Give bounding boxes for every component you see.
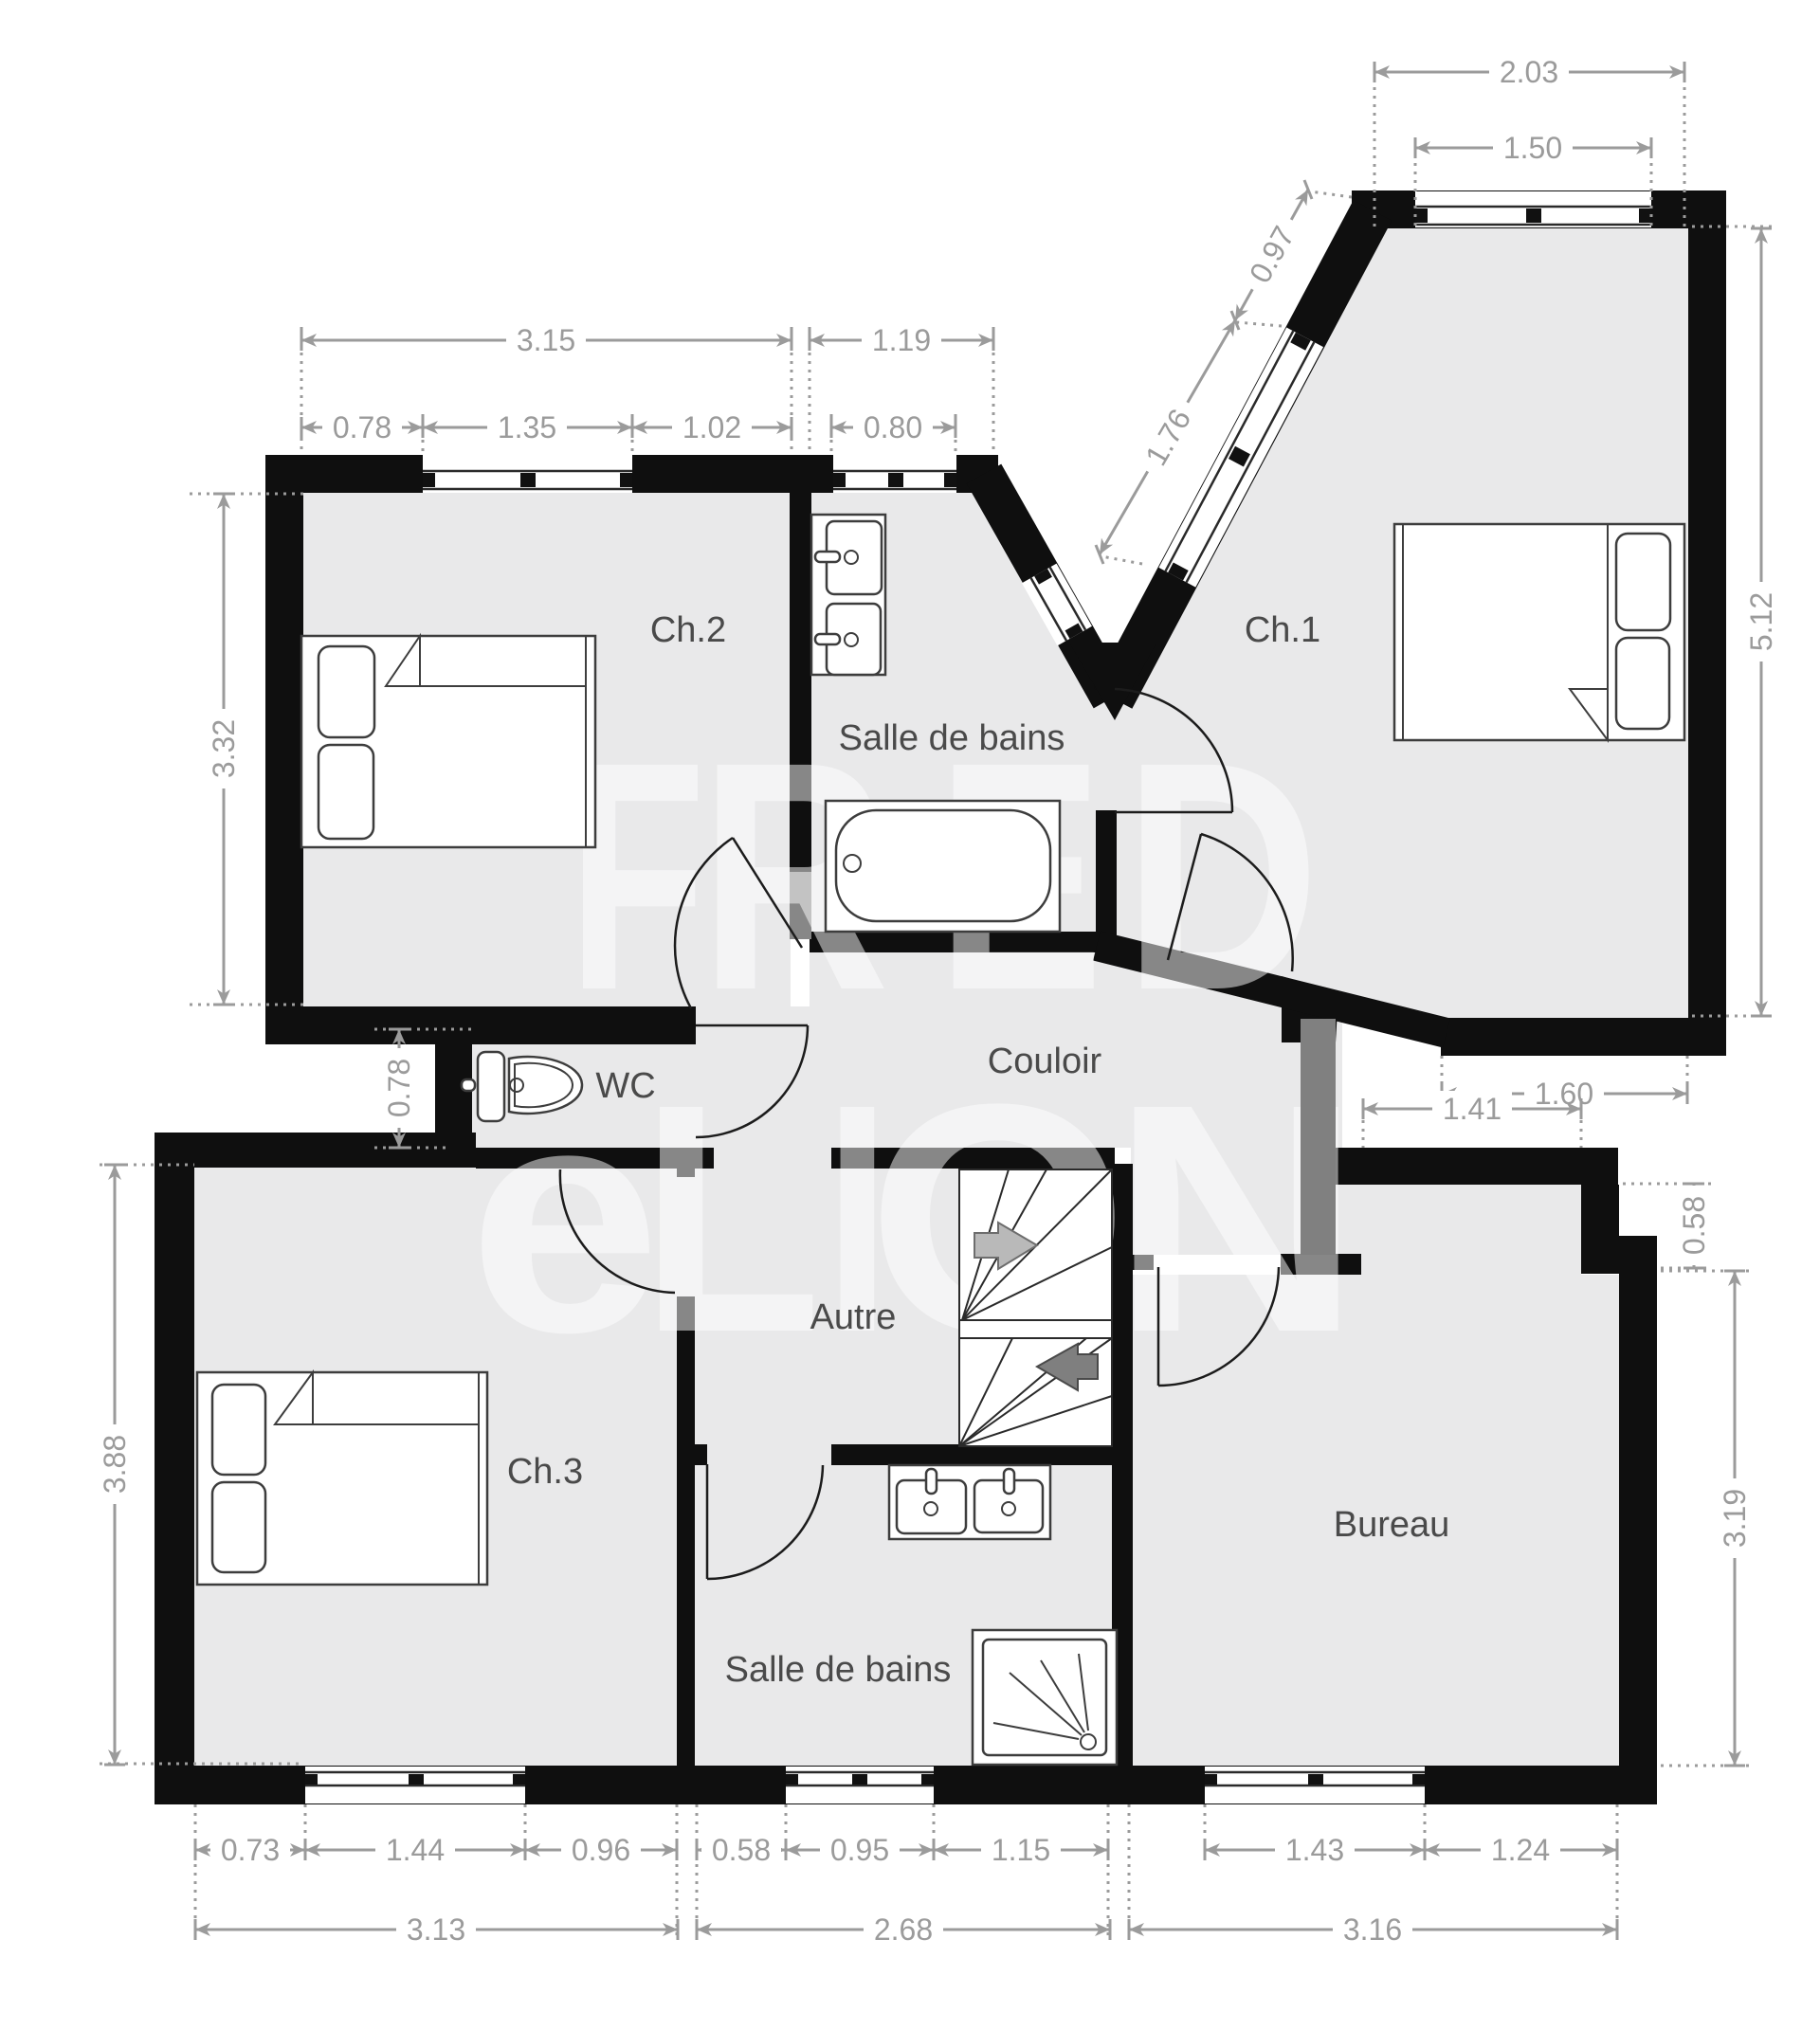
svg-text:1.41: 1.41: [1443, 1092, 1501, 1126]
svg-text:Autre: Autre: [810, 1297, 897, 1337]
svg-text:Ch.1: Ch.1: [1245, 610, 1320, 650]
svg-text:3.19: 3.19: [1718, 1489, 1752, 1548]
svg-text:3.32: 3.32: [207, 719, 241, 778]
svg-text:3.88: 3.88: [98, 1435, 132, 1494]
svg-text:0.58: 0.58: [1677, 1196, 1711, 1255]
svg-text:1.15: 1.15: [992, 1833, 1050, 1867]
svg-text:2.68: 2.68: [874, 1912, 933, 1947]
svg-text:0.95: 0.95: [830, 1833, 889, 1867]
svg-text:0.80: 0.80: [864, 410, 922, 444]
svg-text:0.78: 0.78: [333, 410, 391, 444]
svg-text:3.15: 3.15: [517, 323, 575, 357]
svg-text:D: D: [1123, 695, 1320, 1059]
svg-text:Ch.2: Ch.2: [650, 610, 726, 650]
svg-text:3.16: 3.16: [1343, 1912, 1402, 1947]
svg-text:1.50: 1.50: [1503, 131, 1562, 165]
svg-text:0.78: 0.78: [382, 1059, 416, 1117]
svg-text:1.44: 1.44: [386, 1833, 445, 1867]
svg-text:2.03: 2.03: [1500, 55, 1558, 89]
svg-text:L: L: [640, 1036, 822, 1400]
svg-text:Salle de bains: Salle de bains: [725, 1650, 952, 1690]
svg-text:1.35: 1.35: [498, 410, 556, 444]
svg-text:1.43: 1.43: [1285, 1833, 1344, 1867]
svg-text:1.60: 1.60: [1535, 1077, 1593, 1111]
svg-text:1.24: 1.24: [1491, 1833, 1550, 1867]
svg-text:Bureau: Bureau: [1334, 1505, 1450, 1545]
svg-text:1.02: 1.02: [682, 410, 741, 444]
svg-text:0.96: 0.96: [572, 1833, 630, 1867]
svg-text:0.58: 0.58: [712, 1833, 771, 1867]
svg-text:Couloir: Couloir: [988, 1042, 1102, 1081]
svg-text:Ch.3: Ch.3: [507, 1452, 583, 1492]
svg-text:5.12: 5.12: [1744, 592, 1778, 651]
svg-text:0.73: 0.73: [221, 1833, 280, 1867]
svg-text:3.13: 3.13: [407, 1912, 465, 1947]
svg-text:WC: WC: [595, 1066, 655, 1106]
svg-text:1.19: 1.19: [872, 323, 931, 357]
svg-text:Salle de bains: Salle de bains: [839, 718, 1065, 758]
